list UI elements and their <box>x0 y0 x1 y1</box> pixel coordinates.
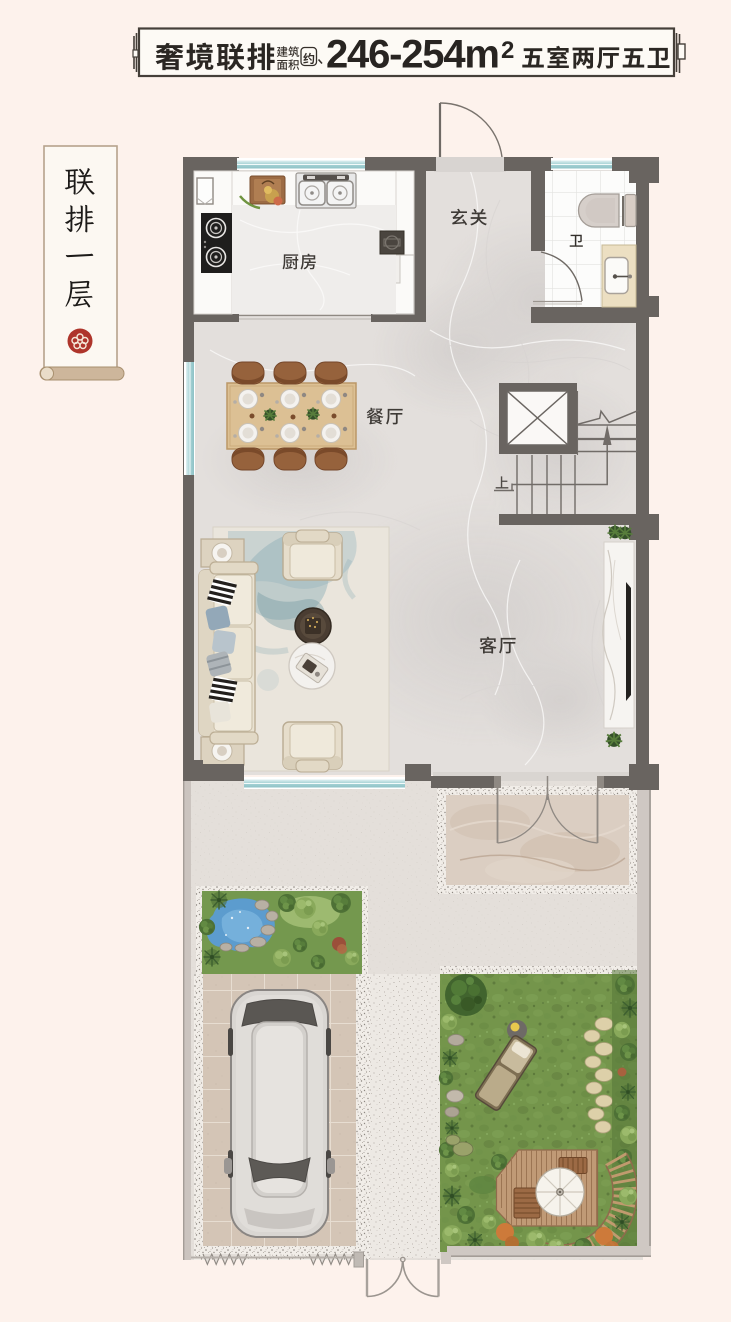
svg-text:246-254m: 246-254m <box>326 33 499 77</box>
svg-text:2: 2 <box>501 37 514 64</box>
